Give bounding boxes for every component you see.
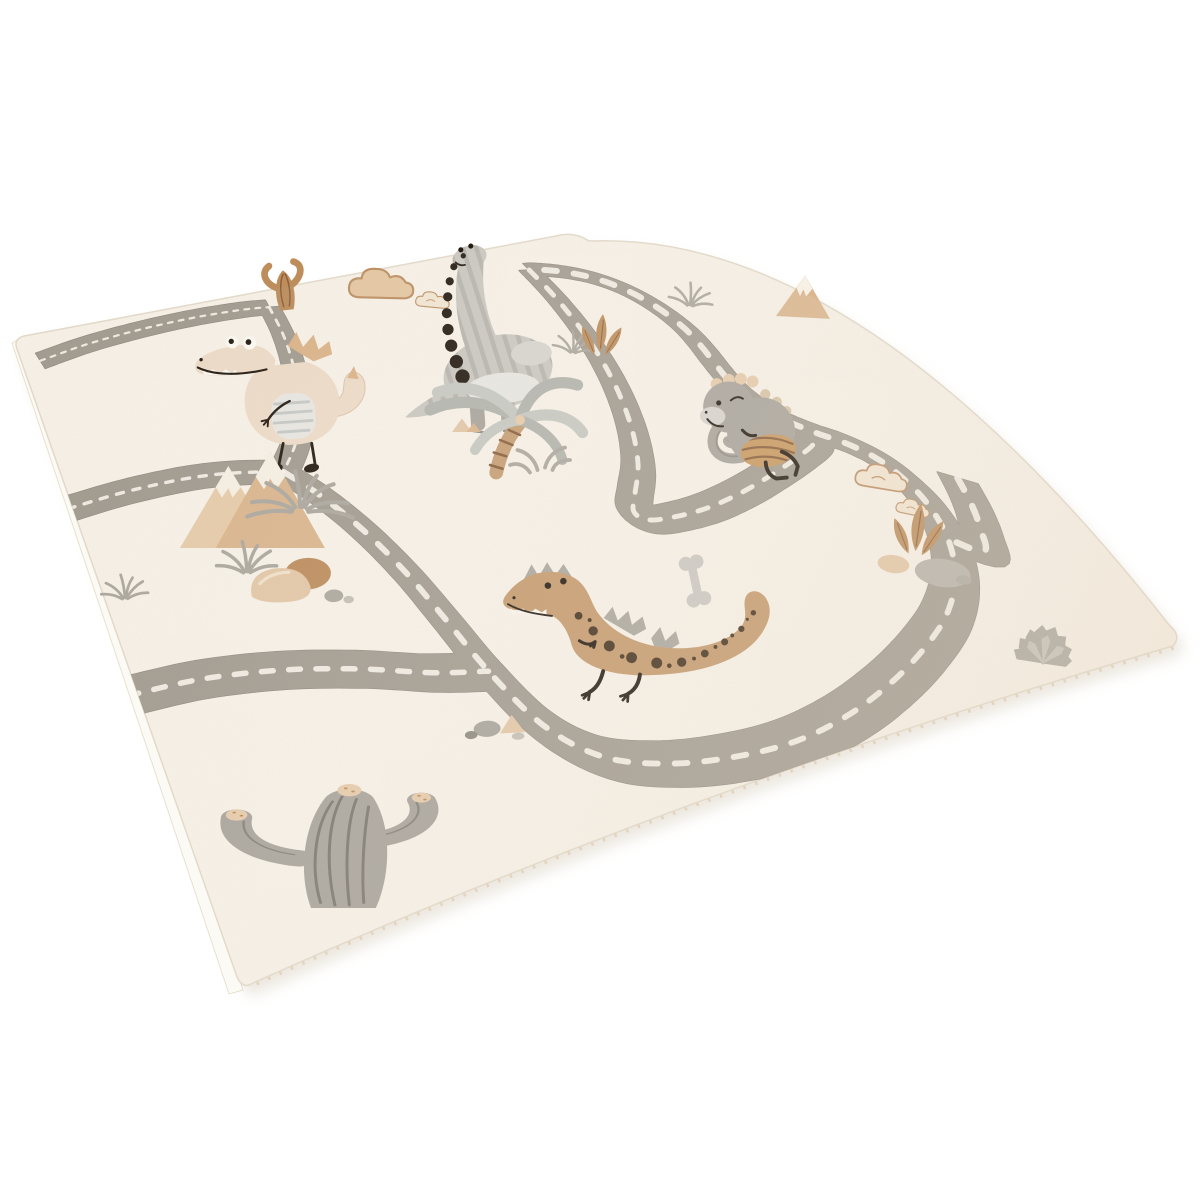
product-photo [0,0,1200,1200]
carpet-texture [0,0,1200,1200]
rug-photo-svg [0,0,1200,1200]
